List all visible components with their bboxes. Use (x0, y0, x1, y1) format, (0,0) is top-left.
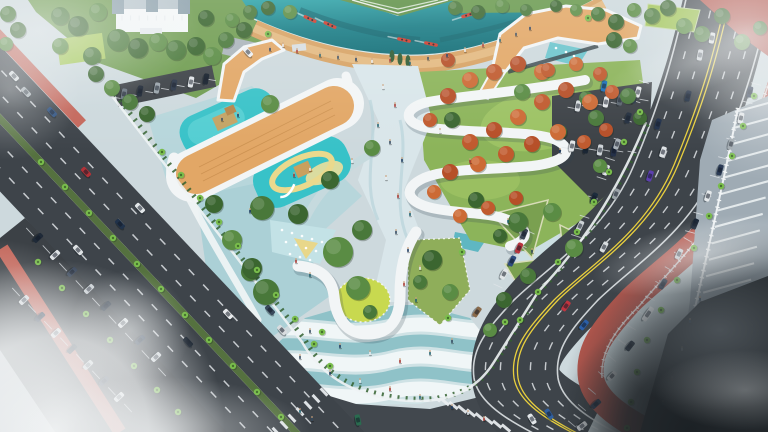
scene-canvas (0, 0, 768, 432)
top-haze (0, 0, 768, 432)
aerial-park-render (0, 0, 768, 432)
fog-and-smoke (0, 0, 768, 432)
